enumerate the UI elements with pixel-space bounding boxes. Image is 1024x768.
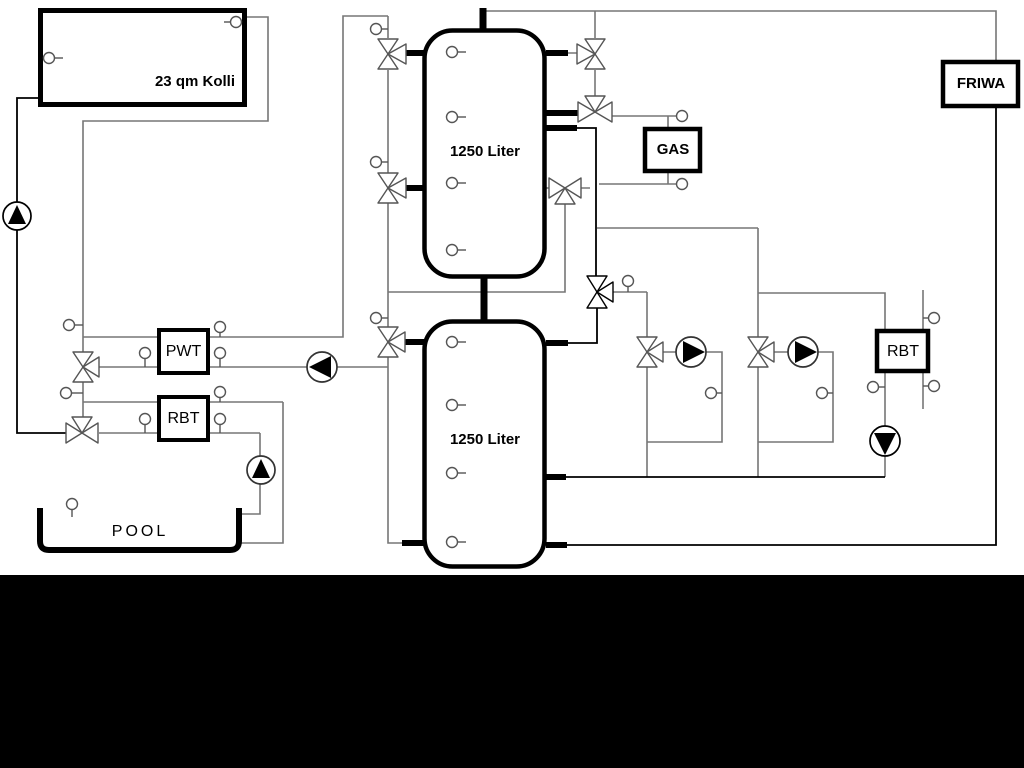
three-way-valve-tank2-left <box>378 327 405 357</box>
sensor-icon <box>67 499 78 510</box>
sensor-icon <box>215 387 226 398</box>
sensor-icon <box>371 313 382 324</box>
pipe-solar-loop <box>17 98 66 433</box>
sensor-icon <box>817 388 828 399</box>
sensor-icon <box>44 53 55 64</box>
sensor-icon <box>215 414 226 425</box>
bottom-black-band <box>0 575 1024 768</box>
sensor-icon <box>868 382 879 393</box>
three-way-valve-pool <box>66 417 98 443</box>
sensor-icon <box>215 322 226 333</box>
circuit1-pump <box>676 337 706 367</box>
pipe-gas-return <box>599 173 676 184</box>
sensor-icon <box>61 388 72 399</box>
pipe-valve3r-stubs <box>546 53 590 188</box>
pool-label: POOL <box>60 523 220 541</box>
pipe-boiler-feed <box>568 128 597 343</box>
gas-label: GAS <box>645 142 701 159</box>
rbt-right-pump <box>870 426 900 456</box>
sensor-icon <box>371 24 382 35</box>
sensor-icon <box>231 17 242 28</box>
sensor-icon <box>623 276 634 287</box>
three-way-valve-gas-return <box>549 178 581 204</box>
tank2-label: 1250 Liter <box>425 432 545 449</box>
pipe-gas-supply <box>612 116 676 127</box>
pipe-left-valve-chain <box>388 16 404 543</box>
rbt-right-label: RBT <box>877 343 929 361</box>
sensor-icon <box>140 414 151 425</box>
circuit2-pump <box>788 337 818 367</box>
three-way-valve-tank1-mid-left <box>378 173 406 203</box>
rbt-left-label: RBT <box>157 410 210 428</box>
sensor-icon <box>447 178 458 189</box>
sensor-icon <box>447 245 458 256</box>
three-way-valve-pwt <box>73 352 99 382</box>
three-way-valve-gas-supply <box>578 96 612 122</box>
three-way-valve-tank1-top-right <box>577 39 605 69</box>
solar-pump <box>3 202 31 230</box>
sensor-icon <box>677 179 688 190</box>
tank1-label: 1250 Liter <box>425 144 545 161</box>
pipe-rbtr-supply <box>758 293 885 329</box>
friwa-label: FRIWA <box>943 76 1019 93</box>
sensor-icon <box>447 537 458 548</box>
sensor-icon <box>929 381 940 392</box>
pool-pump <box>247 456 275 484</box>
pipe-friwa-return <box>567 108 996 545</box>
sensor-icon <box>371 157 382 168</box>
three-way-valve-circuit1 <box>637 337 663 367</box>
sensor-icon <box>447 112 458 123</box>
pipe-rbt-bottom <box>99 433 260 514</box>
sensor-icon <box>140 348 151 359</box>
pipe-mix-to-circuit1 <box>613 292 647 477</box>
sensor-icon <box>447 400 458 411</box>
collector-label: 23 qm Kolli <box>90 74 235 91</box>
sensor-icon <box>447 468 458 479</box>
sensor-icon <box>447 337 458 348</box>
three-way-mixing-valve <box>587 276 613 308</box>
pwt-secondary-pump <box>307 352 337 382</box>
schematic-screenshot: 23 qm Kolli 1250 Liter 1250 Liter PWT RB… <box>0 0 1024 768</box>
pwt-label: PWT <box>157 343 210 361</box>
sensor-icon <box>706 388 717 399</box>
sensor-icon <box>64 320 75 331</box>
sensor-icon <box>929 313 940 324</box>
three-way-valve-circuit2 <box>748 337 774 367</box>
sensor-icon <box>677 111 688 122</box>
sensor-icon <box>215 348 226 359</box>
three-way-valve-tank1-top-left <box>378 39 406 69</box>
sensor-icon <box>447 47 458 58</box>
